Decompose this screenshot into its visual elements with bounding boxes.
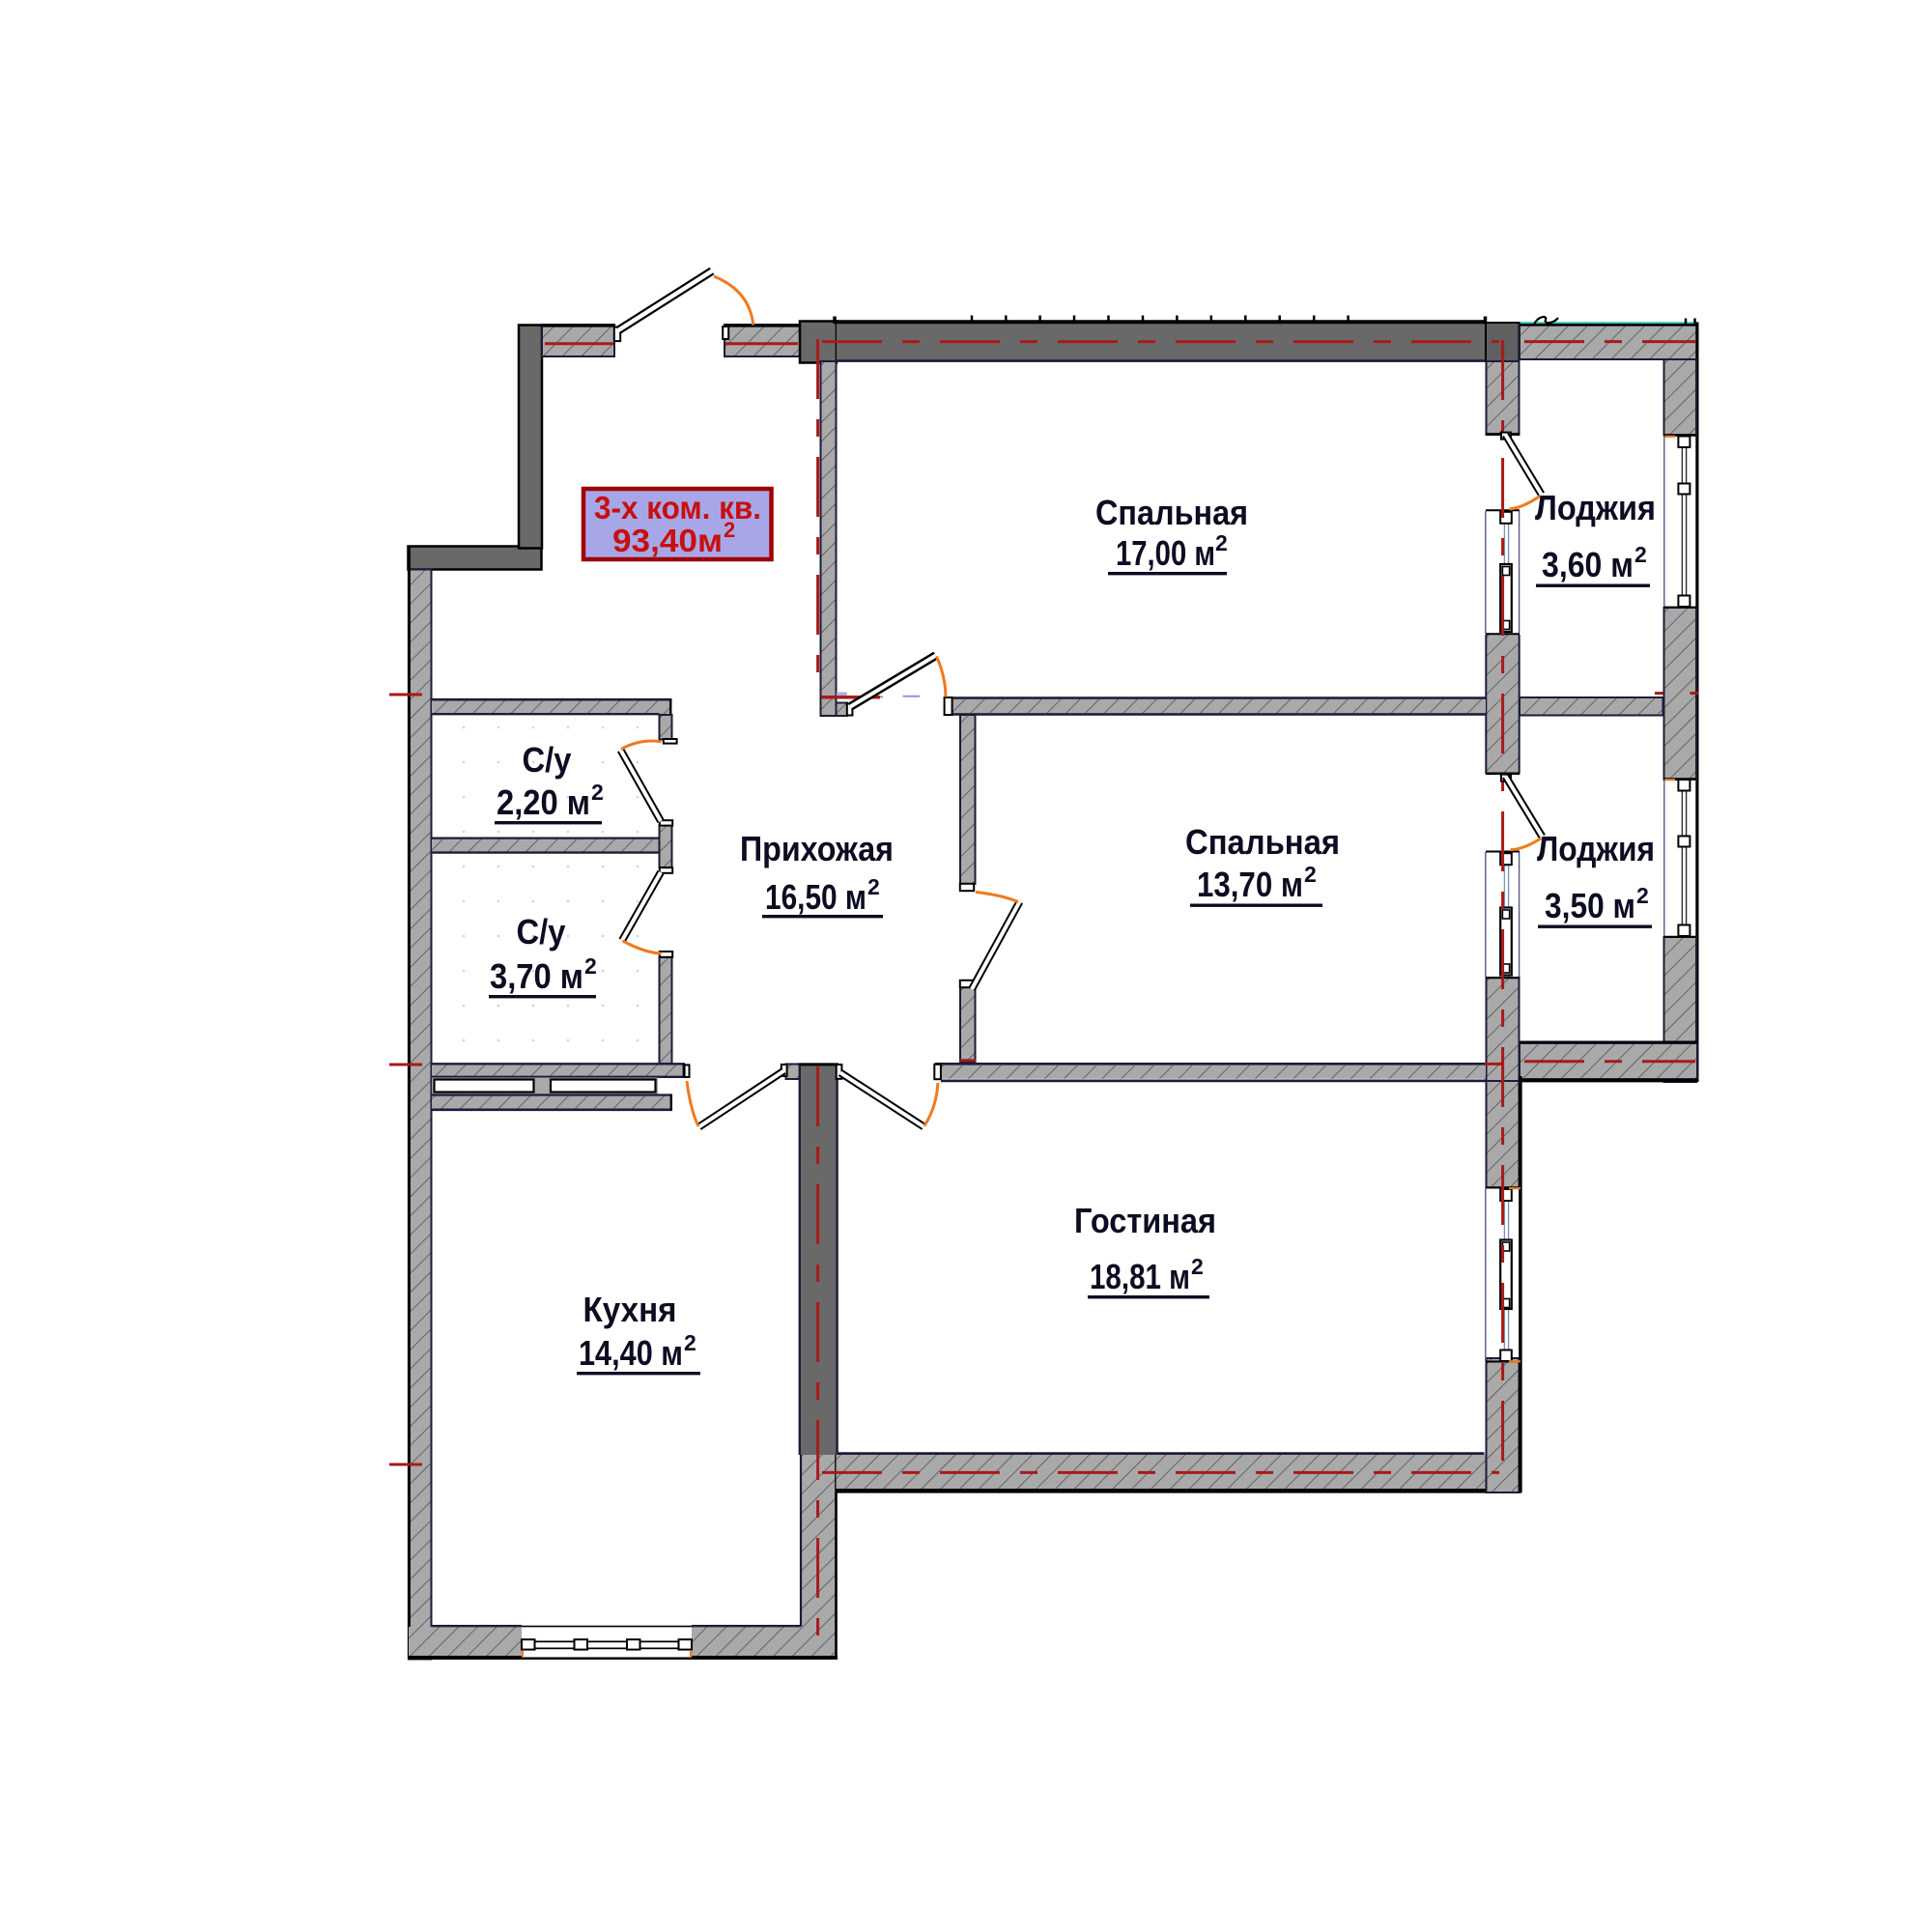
svg-text:Прихожая: Прихожая — [740, 829, 894, 868]
svg-text:3,50 м: 3,50 м — [1545, 886, 1635, 925]
svg-text:2: 2 — [1304, 862, 1317, 887]
svg-text:3,60 м: 3,60 м — [1542, 545, 1634, 584]
svg-text:17,00 м: 17,00 м — [1116, 533, 1215, 573]
svg-text:Лоджия: Лоджия — [1535, 488, 1656, 527]
svg-text:2: 2 — [867, 874, 880, 899]
svg-text:93,40м: 93,40м — [612, 523, 723, 558]
svg-text:2: 2 — [591, 780, 604, 805]
svg-text:С/у: С/у — [523, 740, 572, 780]
svg-text:18,81 м: 18,81 м — [1090, 1257, 1190, 1296]
svg-text:Спальная: Спальная — [1095, 493, 1248, 532]
svg-text:2: 2 — [1215, 530, 1228, 555]
svg-text:3-х ком. кв.: 3-х ком. кв. — [594, 490, 761, 526]
svg-text:Кухня: Кухня — [583, 1290, 677, 1329]
svg-text:2: 2 — [684, 1330, 696, 1355]
svg-text:2: 2 — [1191, 1254, 1204, 1279]
svg-text:2: 2 — [1634, 542, 1647, 567]
svg-text:С/у: С/у — [517, 912, 566, 952]
svg-text:16,50 м: 16,50 м — [765, 877, 867, 917]
svg-text:Гостиная: Гостиная — [1074, 1201, 1216, 1240]
svg-text:13,70 м: 13,70 м — [1197, 865, 1303, 904]
svg-text:Лоджия: Лоджия — [1537, 829, 1655, 868]
svg-text:2: 2 — [584, 953, 597, 979]
svg-text:2: 2 — [724, 518, 735, 542]
svg-text:Спальная: Спальная — [1185, 822, 1340, 862]
svg-text:14,40 м: 14,40 м — [579, 1333, 683, 1373]
svg-text:3,70 м: 3,70 м — [490, 956, 583, 996]
svg-text:2: 2 — [1636, 883, 1649, 908]
svg-text:2,20 м: 2,20 м — [497, 782, 590, 822]
